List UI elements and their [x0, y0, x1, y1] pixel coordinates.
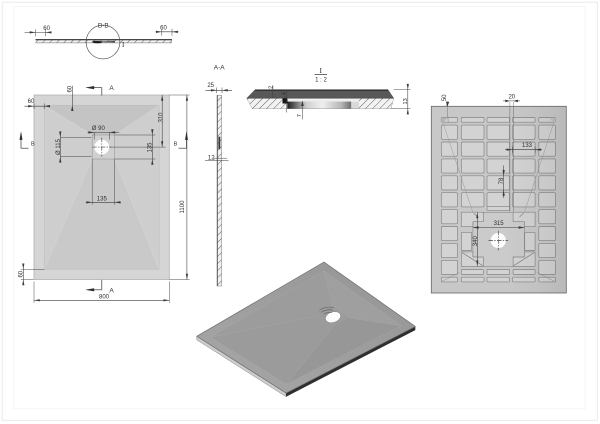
svg-text:78: 78 [499, 177, 505, 184]
svg-text:60: 60 [43, 26, 50, 32]
svg-text:I: I [319, 66, 322, 75]
svg-text:60: 60 [19, 270, 25, 277]
svg-text:315: 315 [494, 221, 505, 227]
svg-text:20: 20 [508, 94, 515, 100]
svg-text:340: 340 [473, 236, 479, 247]
svg-text:Ø 115: Ø 115 [56, 138, 62, 155]
svg-text:4: 4 [281, 92, 287, 95]
svg-text:A: A [109, 85, 114, 92]
svg-text:2: 2 [268, 86, 274, 89]
svg-text:A-A: A-A [214, 65, 226, 72]
svg-text:310: 310 [158, 112, 164, 123]
svg-text:Ø 90: Ø 90 [92, 126, 106, 132]
svg-text:1 : 2: 1 : 2 [315, 78, 327, 84]
svg-text:A: A [109, 287, 114, 294]
svg-text:25: 25 [207, 83, 214, 89]
svg-text:50: 50 [442, 94, 448, 101]
svg-text:60: 60 [160, 25, 167, 31]
svg-text:B-B: B-B [98, 23, 109, 30]
svg-text:135: 135 [148, 142, 154, 153]
svg-text:135: 135 [97, 196, 108, 202]
svg-text:13: 13 [403, 98, 409, 104]
svg-text:7: 7 [297, 114, 303, 117]
svg-text:60: 60 [68, 85, 74, 92]
svg-text:B: B [31, 142, 35, 148]
svg-text:1100: 1100 [180, 200, 186, 214]
svg-text:133: 133 [522, 143, 533, 149]
svg-text:800: 800 [99, 294, 110, 300]
svg-text:B: B [174, 142, 178, 148]
